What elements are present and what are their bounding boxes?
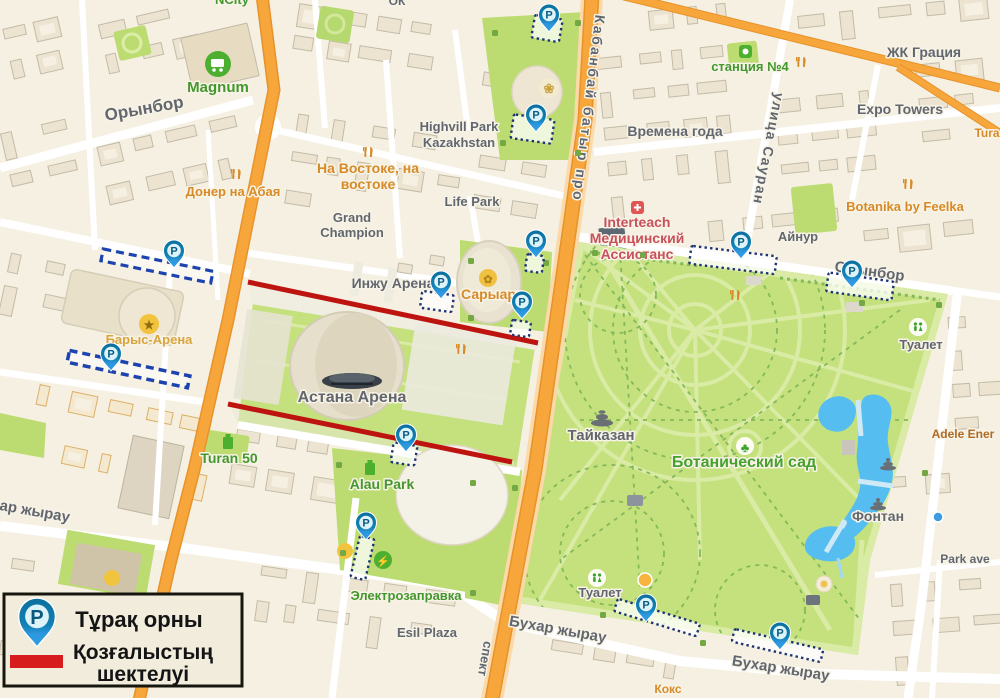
svg-text:⚡: ⚡ (376, 555, 390, 568)
svg-text:ЖК Грация: ЖК Грация (886, 44, 961, 60)
svg-text:Донер на Абая: Донер на Абая (186, 184, 281, 199)
svg-text:Magnum: Magnum (187, 79, 249, 96)
svg-text:Астана Арена: Астана Арена (298, 389, 407, 406)
svg-text:Медицинский: Медицинский (590, 230, 685, 246)
svg-text:ОК: ОК (389, 0, 406, 8)
svg-text:Инжу Арена: Инжу Арена (352, 275, 435, 291)
svg-text:востоке: востоке (341, 176, 396, 192)
svg-text:Электрозаправка: Электрозаправка (350, 588, 462, 603)
svg-text:✿: ✿ (483, 274, 492, 286)
svg-text:Grand: Grand (333, 210, 371, 225)
svg-text:станция №4: станция №4 (711, 59, 789, 74)
svg-text:Тайказан: Тайказан (567, 427, 634, 444)
svg-text:Ассистанс: Ассистанс (601, 246, 674, 262)
svg-text:❀: ❀ (544, 81, 555, 96)
svg-text:На Востоке, на: На Востоке, на (317, 160, 419, 176)
svg-text:Turan 50: Turan 50 (200, 450, 258, 466)
svg-text:Ботанический сад: Ботанический сад (672, 454, 816, 471)
svg-text:Champion: Champion (320, 225, 384, 240)
svg-text:Alau Park: Alau Park (350, 476, 415, 492)
svg-text:Kazakhstan: Kazakhstan (423, 135, 495, 150)
svg-text:P: P (30, 607, 43, 629)
svg-text:Life Park: Life Park (445, 194, 501, 209)
svg-text:Park ave: Park ave (940, 552, 990, 566)
svg-text:Кокс: Кокс (654, 682, 682, 696)
svg-text:Тұрақ орны: Тұрақ орны (75, 607, 202, 632)
svg-text:Botanika by Feelka: Botanika by Feelka (846, 199, 965, 214)
svg-text:Времена года: Времена года (627, 123, 722, 139)
svg-text:Adele Ener: Adele Ener (932, 427, 995, 441)
svg-text:Tura: Tura (974, 126, 999, 140)
svg-text:Interteach: Interteach (604, 214, 671, 230)
svg-text:NCity: NCity (215, 0, 250, 7)
svg-text:Туалет: Туалет (899, 337, 942, 352)
svg-text:Барыс-Арена: Барыс-Арена (106, 332, 194, 347)
svg-text:♣: ♣ (741, 440, 750, 455)
svg-text:шектелуі: шектелуі (97, 663, 189, 686)
svg-text:Expo Towers: Expo Towers (857, 101, 943, 117)
svg-text:Қозғалыстың: Қозғалыстың (73, 641, 213, 664)
svg-text:Esil Plaza: Esil Plaza (397, 625, 458, 640)
svg-text:Туалет: Туалет (578, 585, 621, 600)
svg-text:★: ★ (144, 318, 155, 332)
svg-text:Highvill Park: Highvill Park (420, 119, 500, 134)
svg-text:Айнур: Айнур (778, 229, 818, 244)
